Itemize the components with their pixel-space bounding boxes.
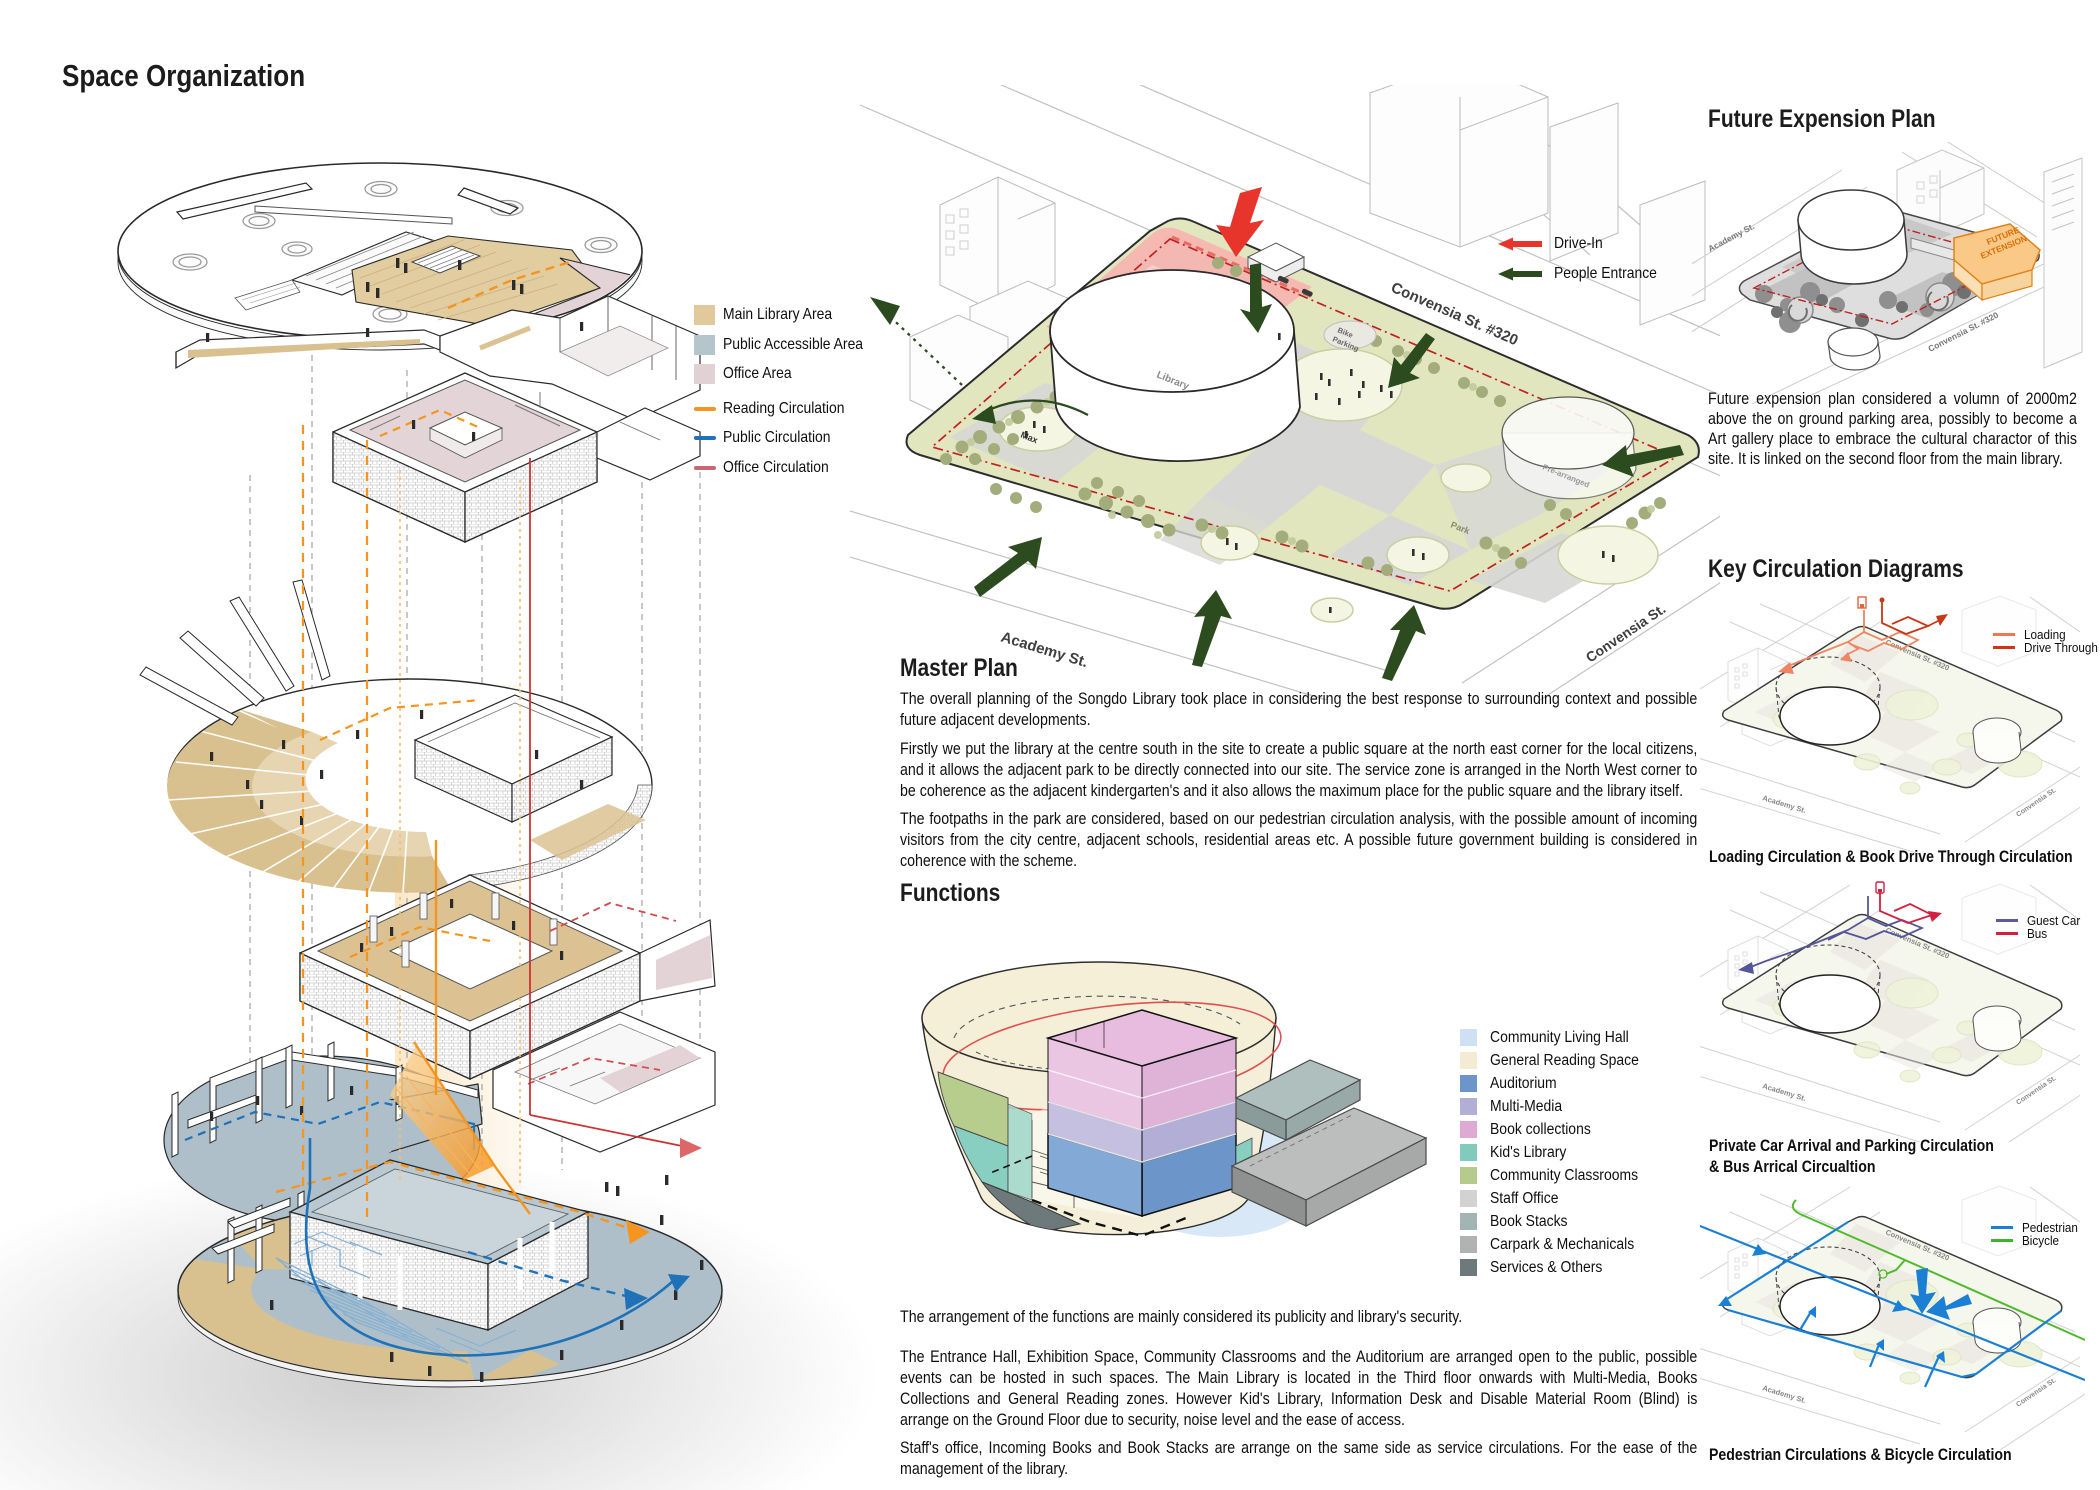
svg-text:Convensia St.: Convensia St. [1583, 600, 1669, 665]
svg-text:Academy St.: Academy St. [1706, 221, 1756, 254]
